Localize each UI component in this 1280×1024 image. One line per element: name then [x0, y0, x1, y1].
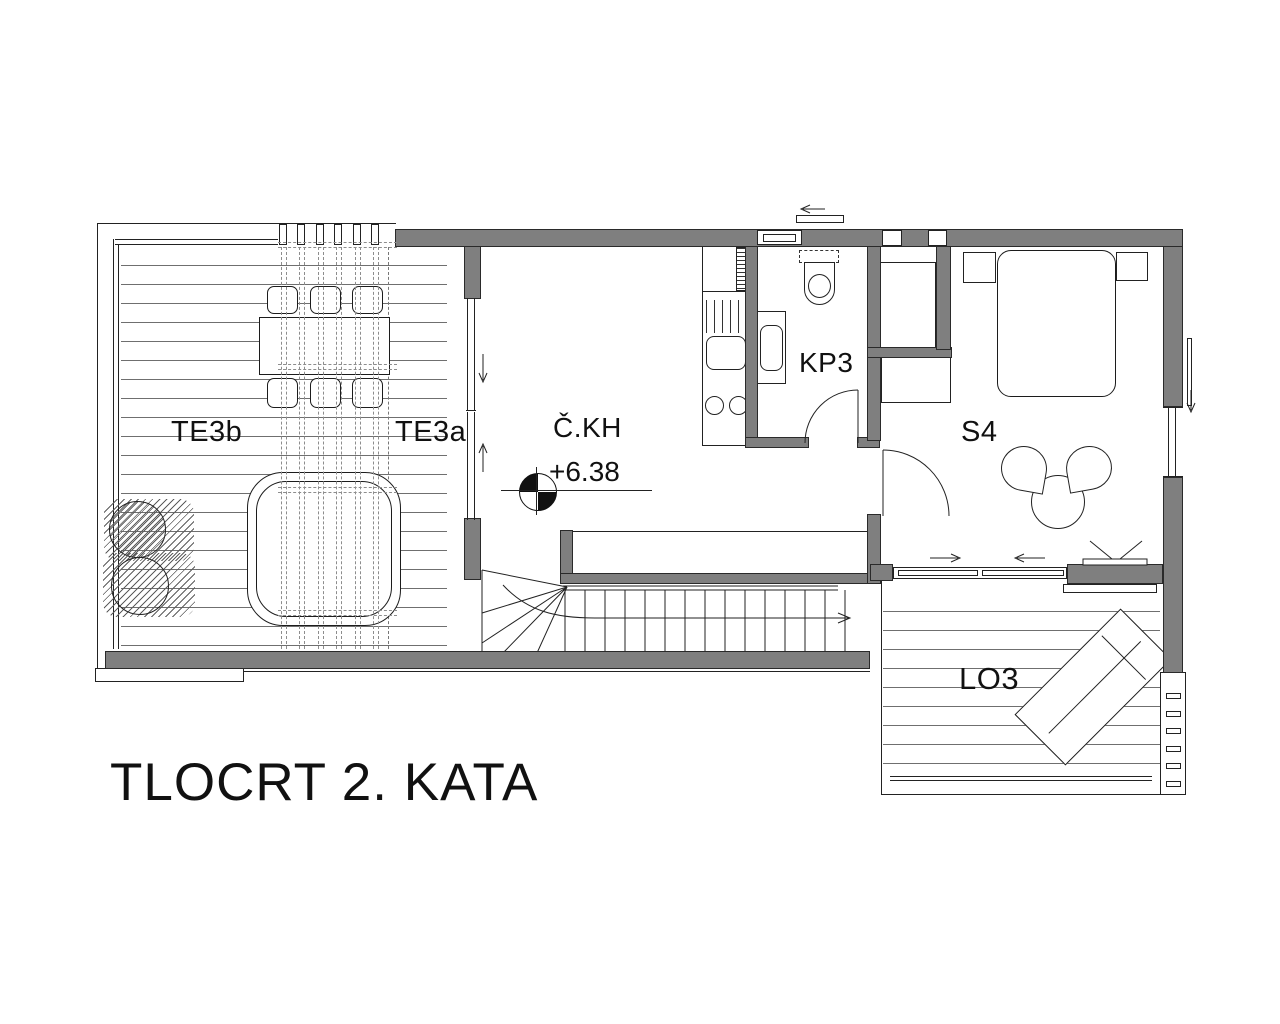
wardrobe — [872, 262, 936, 348]
terrace-railing-top-2 — [115, 244, 278, 245]
armchair — [997, 442, 1050, 494]
wall-kp3-left — [745, 246, 758, 448]
room-label-s4: S4 — [961, 416, 997, 449]
elevation-value: +6.38 — [549, 456, 620, 488]
pergola-beam — [355, 247, 361, 649]
wall-s4-right — [1163, 477, 1183, 673]
window — [928, 230, 947, 246]
sliding-door-glass — [467, 412, 475, 520]
room-label-kp3: KP3 — [799, 347, 853, 379]
wall-column — [464, 246, 481, 299]
shower-tray — [760, 325, 783, 371]
sliding-door-jamb — [466, 410, 476, 411]
bed — [997, 250, 1116, 397]
terrace-step-edge — [95, 668, 244, 682]
terrace-outer-edge-top — [97, 223, 396, 224]
pergola-crossbeam — [278, 487, 397, 493]
railing-baluster — [1166, 693, 1181, 699]
door-swing-s4 — [882, 449, 952, 519]
stairs — [455, 525, 875, 660]
railing-baluster — [1166, 763, 1181, 769]
wall-column — [464, 518, 481, 580]
slide-arrow-left-icon — [795, 203, 847, 215]
railing-baluster — [1166, 711, 1181, 717]
window-frame — [763, 234, 796, 242]
kitchen-sink — [706, 336, 746, 370]
terrace-railing-top-1 — [115, 239, 278, 240]
floor-plan-canvas: +6.38 TE3b TE3a Č.KH KP3 S4 LO3 TLOCRT 2… — [0, 0, 1280, 1024]
slide-arrows-icon — [900, 552, 1070, 564]
loggia-inner-line — [890, 776, 1152, 781]
armchair — [1063, 442, 1116, 493]
wall-landing-bottom — [560, 573, 868, 584]
hot-tub-inner-rim — [256, 481, 392, 617]
pergola-beam — [318, 247, 324, 649]
pergola-beam — [373, 247, 379, 649]
wall-terrace-band — [105, 651, 870, 669]
elevation-leader-line — [501, 490, 652, 491]
loggia-step — [1063, 584, 1157, 593]
door-swing-kp3 — [804, 388, 862, 446]
wall-kp3-s4 — [867, 357, 881, 441]
pergola-crossbeam — [278, 242, 397, 248]
railing-baluster — [1166, 781, 1181, 787]
room-label-te3a: TE3a — [395, 416, 466, 449]
pergola-crossbeam — [278, 610, 397, 616]
window-frame — [1175, 407, 1176, 477]
slide-arrow-down-icon — [477, 352, 489, 386]
wall-wardrobe-pillar — [936, 246, 951, 350]
pergola-beam — [299, 247, 305, 649]
wall-kp3-s4 — [867, 246, 881, 358]
terrace-outer-edge-left — [97, 223, 98, 672]
wall-light-icon — [1080, 538, 1152, 568]
sliding-door-glass — [467, 298, 475, 410]
sliding-window-pane — [796, 215, 844, 223]
railing-baluster — [1166, 746, 1181, 752]
terrace-step-line — [244, 671, 870, 672]
wall-s4-right — [1163, 246, 1183, 407]
slide-arrow-down-icon — [1184, 388, 1198, 418]
pergola-beam — [281, 247, 287, 649]
floor-plan-title: TLOCRT 2. KATA — [110, 752, 538, 813]
room-label-ckh: Č.KH — [553, 412, 622, 444]
sliding-door-panel — [898, 570, 978, 576]
slide-arrow-up-icon — [477, 440, 489, 474]
wall-loggia-jamb — [870, 564, 893, 581]
sliding-door-panel — [982, 570, 1064, 576]
plant — [111, 557, 169, 615]
room-label-te3b: TE3b — [171, 416, 242, 449]
room-label-lo3: LO3 — [959, 661, 1019, 697]
nightstand — [963, 252, 996, 283]
pergola-beam — [336, 247, 342, 649]
window-frame — [1168, 407, 1169, 477]
cooktop-burner — [705, 396, 724, 415]
railing-baluster — [1166, 728, 1181, 734]
window — [882, 230, 902, 246]
window — [1163, 407, 1183, 477]
wall-kp3-bottom — [745, 437, 809, 448]
pergola-crossbeam — [278, 364, 397, 370]
dresser — [881, 357, 951, 403]
loggia-edge-bottom — [881, 794, 1186, 795]
toilet-seat — [808, 274, 831, 298]
nightstand — [1116, 252, 1148, 281]
loggia-edge-left — [881, 581, 882, 795]
plant — [109, 501, 166, 558]
sink-drainboard — [706, 300, 746, 333]
kitchen-counter-divider — [702, 291, 746, 292]
elevation-cross-line — [536, 467, 537, 515]
